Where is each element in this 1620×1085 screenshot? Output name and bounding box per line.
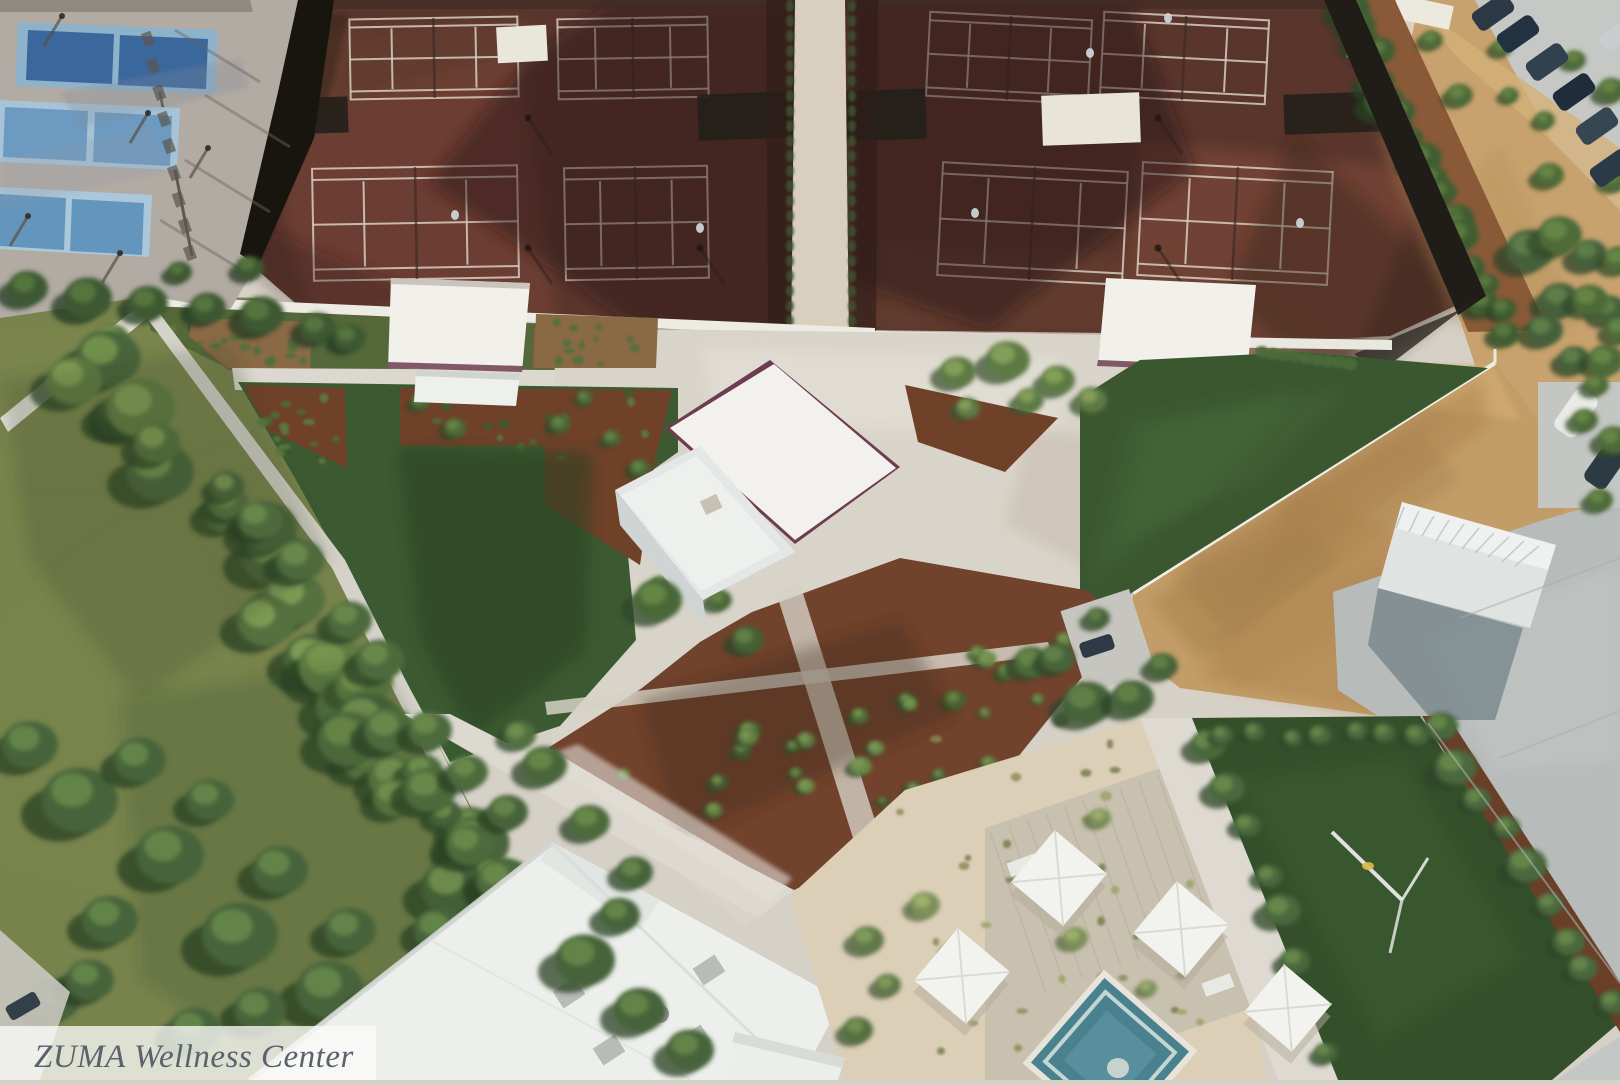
svg-text:ZUMA Wellness Center: ZUMA Wellness Center: [34, 1039, 354, 1075]
